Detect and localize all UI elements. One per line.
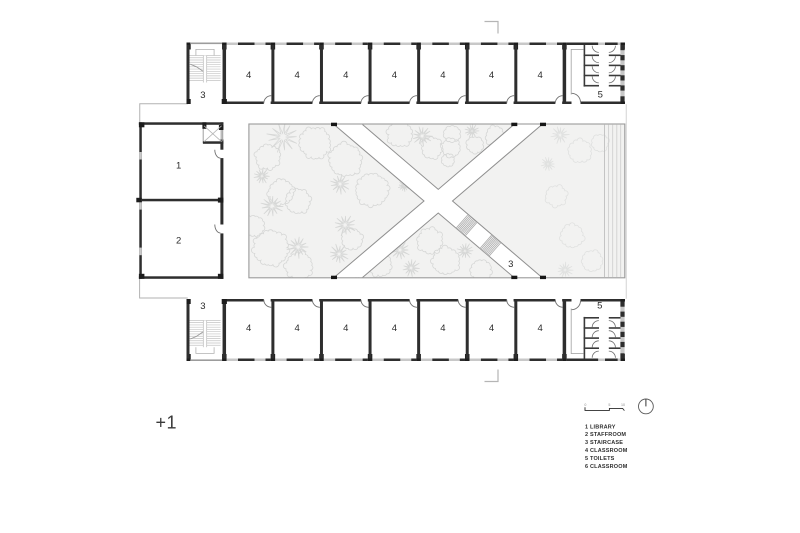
svg-text:4: 4 — [440, 70, 445, 81]
svg-text:3: 3 — [508, 259, 513, 270]
svg-text:5: 5 — [598, 90, 603, 101]
svg-text:5: 5 — [597, 301, 602, 312]
svg-text:5 TOILETS: 5 TOILETS — [585, 456, 615, 462]
svg-text:4: 4 — [537, 70, 542, 81]
svg-text:4: 4 — [392, 323, 397, 334]
svg-text:6 CLASSROOM: 6 CLASSROOM — [585, 464, 628, 470]
svg-text:5: 5 — [608, 403, 610, 407]
svg-text:1 LIBRARY: 1 LIBRARY — [585, 424, 616, 430]
svg-text:4: 4 — [295, 70, 300, 81]
svg-text:0: 0 — [584, 403, 586, 407]
svg-text:2 STAFFROOM: 2 STAFFROOM — [585, 432, 626, 438]
svg-text:2: 2 — [176, 235, 181, 246]
svg-text:4: 4 — [392, 70, 397, 81]
svg-text:4: 4 — [295, 323, 300, 334]
svg-text:4: 4 — [489, 70, 494, 81]
svg-text:4: 4 — [537, 323, 542, 334]
svg-text:4: 4 — [246, 70, 251, 81]
svg-text:4: 4 — [343, 70, 348, 81]
svg-text:4: 4 — [246, 323, 251, 334]
svg-text:4: 4 — [440, 323, 445, 334]
svg-text:4: 4 — [489, 323, 494, 334]
svg-text:10: 10 — [621, 403, 625, 407]
svg-text:+1: +1 — [156, 413, 178, 433]
svg-text:4 CLASSROOM: 4 CLASSROOM — [585, 448, 628, 454]
svg-text:4: 4 — [343, 323, 348, 334]
svg-text:3: 3 — [200, 90, 205, 101]
svg-text:1: 1 — [176, 160, 181, 171]
svg-text:3 STAIRCASE: 3 STAIRCASE — [585, 440, 623, 446]
svg-text:3: 3 — [200, 301, 205, 312]
